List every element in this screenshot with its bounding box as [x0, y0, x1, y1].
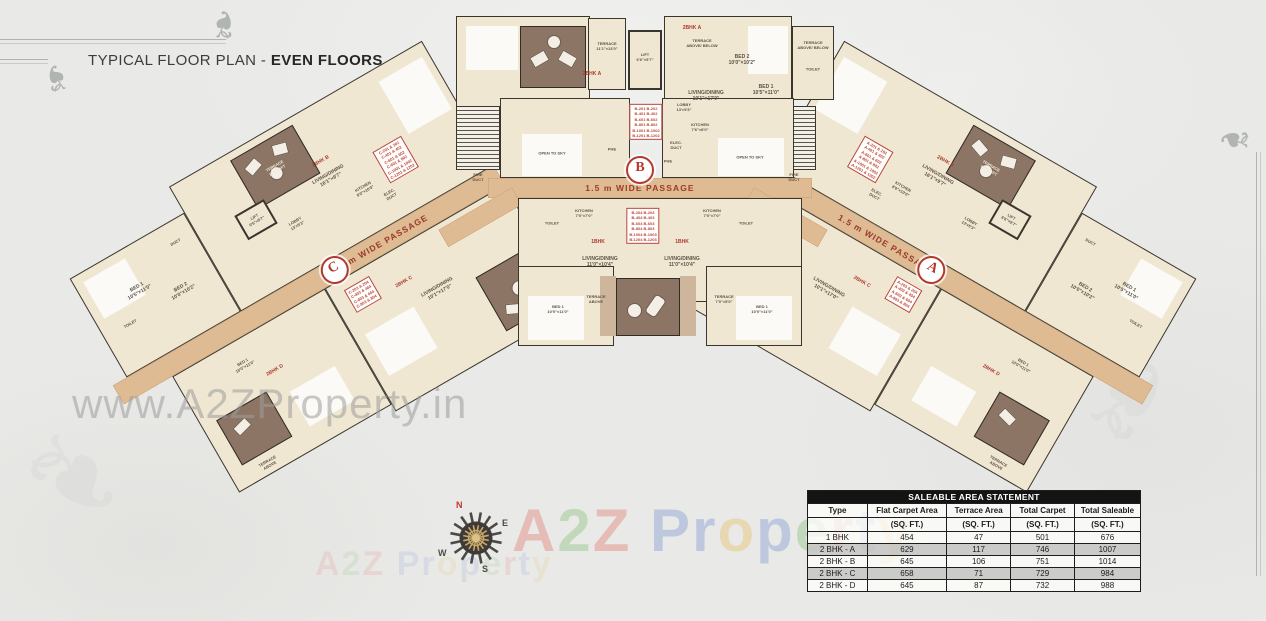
- room-label-living: LIVING/DINING 10'1"×17'0": [688, 90, 724, 102]
- terrace: [616, 278, 680, 336]
- room-label-bed2: BED 2 10'0"×10'2": [729, 54, 756, 66]
- cell: 71: [947, 568, 1011, 580]
- compass-icon: [443, 505, 509, 571]
- room: [792, 26, 834, 100]
- cell: 732: [1011, 580, 1075, 592]
- room-label-bed1: BED 1 10'5"×11'0": [753, 84, 779, 96]
- col-header-terrace: Terrace Area: [947, 504, 1011, 518]
- compass-rose: N E W S: [436, 498, 514, 578]
- unit-type-label: 1BHK: [591, 239, 605, 245]
- compass-west: W: [438, 548, 447, 558]
- room-label-fire-duct: FIRE DUCT: [788, 173, 799, 183]
- room-label-kitchen: KITCHEN 7'0"×7'0": [575, 209, 593, 219]
- cell: 117: [947, 544, 1011, 556]
- room-label-fire-duct: FIRE DUCT: [472, 173, 483, 183]
- table-row: 2 BHK - B 645 106 751 1014: [808, 556, 1141, 568]
- unit-number-stack: B-201 B-202 B-401 B-402 B-601 B-602 B-80…: [629, 104, 662, 140]
- cell: 106: [947, 556, 1011, 568]
- cell: 501: [1011, 532, 1075, 544]
- cell: 645: [867, 556, 946, 568]
- cell: 1007: [1074, 544, 1140, 556]
- cell: 729: [1011, 568, 1075, 580]
- cell: 751: [1011, 556, 1075, 568]
- room-label-terrace: TERRACE ABOVE/ BELOW: [686, 39, 717, 49]
- room: [736, 296, 792, 340]
- table-row: 2 BHK - D 645 87 732 988: [808, 580, 1141, 592]
- room: [528, 296, 584, 340]
- room-label-bed1: BED 1 10'0"×11'0": [547, 305, 568, 315]
- watermark-url: www.A2ZProperty.in: [72, 380, 467, 428]
- staircase: [456, 106, 500, 170]
- room-label-phe: PHE: [608, 148, 616, 153]
- room-label-open-sky: OPEN TO SKY: [736, 156, 763, 161]
- room-label-kitchen: KITCHEN 7'0"×7'0": [703, 209, 721, 219]
- col-header-flat-carpet: Flat Carpet Area: [867, 504, 946, 518]
- table-title: SALEABLE AREA STATEMENT: [808, 491, 1141, 504]
- cell: 47: [947, 532, 1011, 544]
- terrace-strip: [680, 276, 696, 336]
- cell-type: 2 BHK - C: [808, 568, 868, 580]
- room-label-lobby: LOBBY 13'×5'3": [676, 103, 691, 113]
- room-label-terrace: TERRACE ABOVE: [586, 295, 605, 305]
- compass-north: N: [456, 500, 463, 510]
- room-label-kitchen: KITCHEN 7'6"×8'0": [691, 123, 709, 133]
- passage-label: 1.5 m WIDE PASSAGE: [585, 183, 694, 193]
- unit-number-stack: B-204 B-203 B-404 B-403 B-604 B-603 B-80…: [626, 208, 659, 244]
- cell: 988: [1074, 580, 1140, 592]
- col-header-total-carpet: Total Carpet: [1011, 504, 1075, 518]
- room: [466, 26, 518, 70]
- compass-east: E: [502, 518, 508, 528]
- room-label-phe: PHE: [664, 160, 672, 165]
- cell-type: 2 BHK - A: [808, 544, 868, 556]
- room-label-living: LIVING/DINING 11'0"×10'4": [582, 256, 618, 268]
- room-label-terrace: TERRACE 11'1"×13'0": [596, 42, 617, 52]
- col-header-total-saleable: Total Saleable: [1074, 504, 1140, 518]
- room-label-elec-duct: ELEC. DUCT: [670, 141, 682, 151]
- cell-type: 2 BHK - D: [808, 580, 868, 592]
- room-label-toilet: TOILET: [806, 68, 820, 73]
- unit-type-label: 2BHK A: [683, 25, 701, 31]
- table-row: 2 BHK - C 658 71 729 984: [808, 568, 1141, 580]
- room: [748, 26, 788, 74]
- cell: 629: [867, 544, 946, 556]
- room-label-toilet: TOILET: [739, 222, 753, 227]
- cell: 676: [1074, 532, 1140, 544]
- floor-plan-page: { "title": { "prefix": "TYPICAL FLOOR PL…: [0, 0, 1266, 621]
- unit-header: (SQ. FT.): [947, 518, 1011, 532]
- room-label-open-sky: OPEN TO SKY: [538, 152, 565, 157]
- compass-south: S: [482, 564, 488, 574]
- wing-letter-b: B: [626, 156, 654, 184]
- table-row: 1 BHK 454 47 501 676: [808, 532, 1141, 544]
- cell: 1014: [1074, 556, 1140, 568]
- table-row: 2 BHK - A 629 117 746 1007: [808, 544, 1141, 556]
- cell: 746: [1011, 544, 1075, 556]
- col-header-type: Type: [808, 504, 868, 518]
- room-label-bed1: BED 1 10'0"×11'0": [751, 305, 772, 315]
- room-label-terrace: TERRACE ABOVE/ BELOW: [797, 41, 828, 51]
- cell: 645: [867, 580, 946, 592]
- unit-header: (SQ. FT.): [1011, 518, 1075, 532]
- terrace-strip: [600, 276, 616, 336]
- saleable-area-table: SALEABLE AREA STATEMENT Type Flat Carpet…: [807, 490, 1141, 592]
- room-label-toilet: TOILET: [545, 222, 559, 227]
- cell: 454: [867, 532, 946, 544]
- room-label-lift: LIFT 6'6"×5'7": [637, 53, 654, 63]
- unit-header: (SQ. FT.): [867, 518, 946, 532]
- room-label-living: LIVING/DINING 11'0"×10'4": [664, 256, 700, 268]
- cell-type: 1 BHK: [808, 532, 868, 544]
- cell: 87: [947, 580, 1011, 592]
- cell-type: 2 BHK - B: [808, 556, 868, 568]
- unit-header: (SQ. FT.): [1074, 518, 1140, 532]
- unit-type-label: 2BHK A: [583, 71, 601, 77]
- cell: 984: [1074, 568, 1140, 580]
- room: [588, 18, 626, 90]
- terrace: [520, 26, 586, 88]
- unit-header: [808, 518, 868, 532]
- room-label-terrace: TERRACE 7'0"×5'0": [714, 295, 733, 305]
- unit-type-label: 1BHK: [675, 239, 689, 245]
- cell: 658: [867, 568, 946, 580]
